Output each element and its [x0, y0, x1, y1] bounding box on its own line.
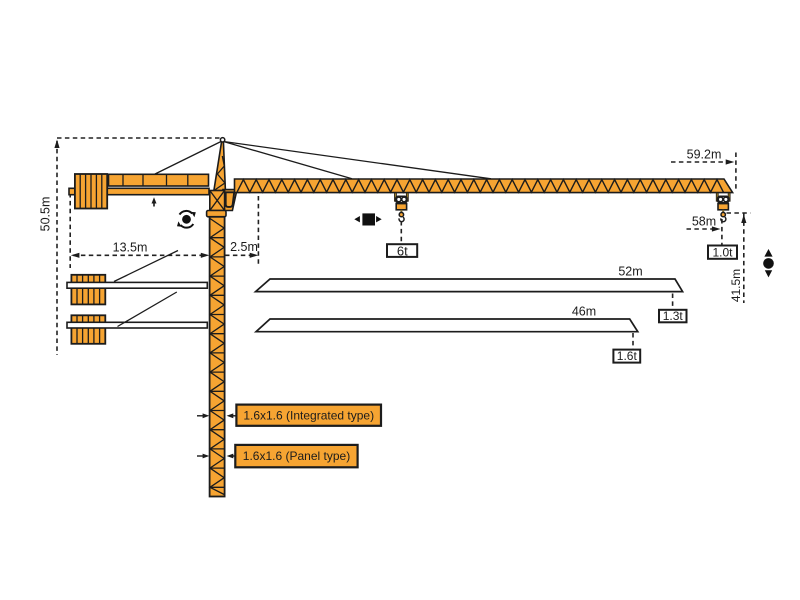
svg-text:50.5m: 50.5m	[39, 197, 53, 232]
svg-text:1.6t: 1.6t	[617, 349, 638, 363]
svg-text:2.5m: 2.5m	[230, 240, 258, 254]
svg-text:41.5m: 41.5m	[729, 269, 743, 302]
svg-text:1.3t: 1.3t	[663, 309, 684, 323]
svg-text:13.5m: 13.5m	[113, 241, 148, 255]
svg-text:59.2m: 59.2m	[687, 148, 722, 162]
svg-text:1.6x1.6 (Panel type): 1.6x1.6 (Panel type)	[243, 449, 350, 463]
svg-text:58m: 58m	[692, 215, 716, 229]
svg-text:1.0t: 1.0t	[712, 246, 733, 260]
svg-text:6t: 6t	[397, 243, 408, 258]
svg-text:52m: 52m	[618, 265, 642, 279]
svg-text:1.6x1.6 (Integrated type): 1.6x1.6 (Integrated type)	[243, 408, 374, 422]
svg-text:46m: 46m	[572, 305, 596, 319]
